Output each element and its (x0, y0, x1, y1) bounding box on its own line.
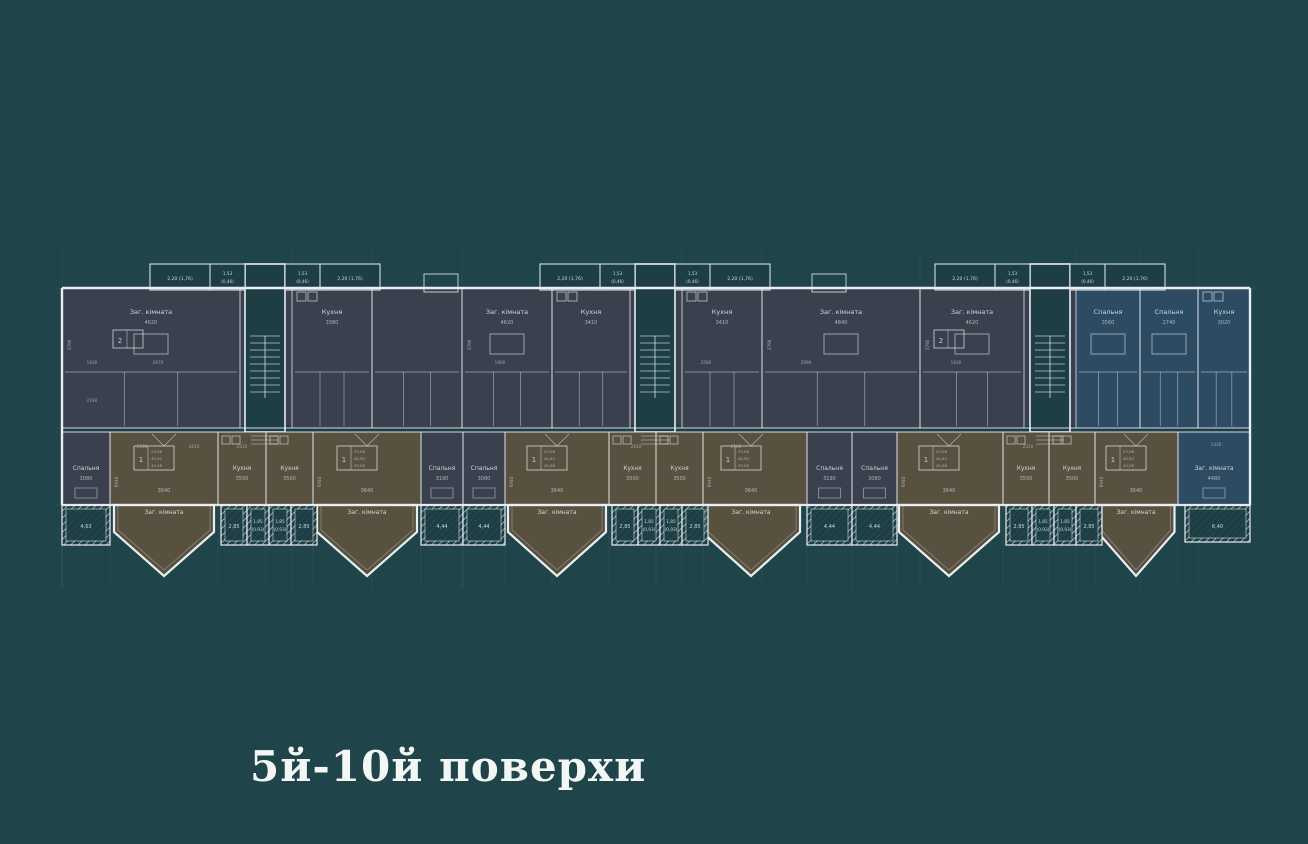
room-label: Кухня (1214, 308, 1235, 316)
room-vdim: 3790 (67, 339, 72, 350)
room-dim: 3380 (326, 320, 339, 326)
balcony-floor (642, 509, 656, 541)
balcony-area: 4,44 (869, 524, 880, 530)
room-dim: 4620 (966, 320, 979, 326)
room-vdim: 3790 (925, 339, 930, 350)
room-dim: 3500 (1066, 476, 1079, 482)
room-dim: 3080 (80, 476, 93, 482)
balcony-area: 6,40 (1212, 524, 1223, 530)
room-dim: 3500 (1020, 476, 1033, 482)
balcony-area: 2,20 (1,76) (1122, 276, 1148, 282)
apartment-number: 1 (924, 456, 928, 464)
balcony-area: 2,20 (1,76) (952, 276, 978, 282)
balcony-area: 4,44 (478, 524, 489, 530)
balcony-area: 1,53 (298, 271, 308, 276)
room-label: Кухня (1017, 466, 1035, 472)
balcony-area: 2,85 (228, 524, 239, 530)
room-vdim: 6940 (901, 476, 906, 487)
balcony-floor (251, 509, 265, 541)
extra-dim: 2670 (153, 360, 164, 365)
top-balcony (210, 264, 245, 290)
room-dim: 2740 (1163, 320, 1176, 326)
room-vdim: 3790 (467, 339, 472, 350)
room-lower (110, 432, 218, 505)
extra-dim: 2190 (87, 398, 98, 403)
balcony-area: 1,53 (613, 271, 623, 276)
balcony-area: 2,85 (689, 524, 700, 530)
room-dim: 4840 (835, 320, 848, 326)
extra-dim: 2580 (701, 360, 712, 365)
room-vdim: 6940 (1099, 476, 1104, 487)
room-label: Спальня (73, 465, 100, 472)
apartment-area-value: 23,06 (354, 449, 365, 454)
apartment-area-value: 23,06 (738, 449, 749, 454)
room-label: Кухня (581, 308, 602, 316)
top-balcony (995, 264, 1030, 290)
extra-dim: 2990 (801, 360, 812, 365)
room-label: Спальня (429, 465, 456, 472)
balcony-area: 1,85 (1060, 519, 1070, 525)
room-lower (897, 432, 1003, 505)
balcony-area: (0,46) (611, 279, 624, 284)
extra-dim: 1430 (1211, 442, 1222, 447)
room-label: Спальня (1155, 308, 1184, 316)
room-label: Спальня (471, 465, 498, 472)
extra-dim: 1900 (495, 360, 506, 365)
apartment-area-value: 40,50 (738, 456, 749, 461)
room-lower (313, 432, 421, 505)
balcony-area: (0,46) (296, 279, 309, 284)
balcony-area: 1,85 (275, 519, 285, 525)
apartment-area-value: 43,28 (1123, 463, 1134, 468)
room-label: Кухня (1063, 466, 1081, 472)
extra-dim: 2100 (137, 444, 148, 449)
room-dim: 3640 (745, 488, 758, 494)
apartment-area-value: 43,28 (738, 463, 749, 468)
floor-plan-image: Заг. кімната462037902Кухня3380Заг. кімна… (0, 0, 1308, 844)
balcony-area: (0,46) (1081, 279, 1094, 284)
extra-dim: 1930 (951, 360, 962, 365)
room-dim: 3080 (868, 476, 881, 482)
balcony-area: 2,85 (1013, 524, 1024, 530)
top-balcony (600, 264, 635, 290)
apartment-number: 2 (118, 337, 122, 345)
room-label: Заг. кімната (537, 509, 576, 516)
extra-dim: 2100 (731, 444, 742, 449)
balcony-area: 1,53 (1008, 271, 1018, 276)
room-lower (1095, 432, 1178, 505)
room-label: Кухня (322, 308, 343, 316)
apartment-number: 1 (1111, 456, 1115, 464)
room-label: Кухня (233, 466, 251, 472)
room-label: Кухня (280, 466, 298, 472)
balcony-area: (0,93) (274, 527, 287, 533)
apartment-number: 2 (939, 337, 943, 345)
balcony-area: 2,85 (298, 524, 309, 530)
apartment-area-value: 23,06 (1123, 449, 1134, 454)
apartment-area-value: 23,06 (151, 449, 162, 454)
apartment-area-value: 40,50 (1123, 456, 1134, 461)
balcony-floor (1036, 509, 1050, 541)
floor-title: 5й-10й поверхи (250, 742, 646, 791)
room-dim: 3080 (478, 476, 491, 482)
balcony-area: (0,93) (643, 527, 656, 533)
room-upper (372, 288, 462, 428)
apartment-area-value: 40,50 (151, 456, 162, 461)
apartment-area-value: 23,06 (936, 449, 947, 454)
balcony-area: 2,20 (1,76) (557, 276, 583, 282)
room-dim: 3020 (1218, 320, 1231, 326)
balcony-area: 2,85 (619, 524, 630, 530)
room-dim: 3640 (1130, 488, 1143, 494)
balcony-floor (664, 509, 678, 541)
balcony-area: (0,46) (1006, 279, 1019, 284)
room-lower (703, 432, 807, 505)
balcony-floor (273, 509, 287, 541)
balcony-area: (0,93) (665, 527, 678, 533)
top-balcony (285, 264, 320, 290)
apartment-area-value: 40,50 (354, 456, 365, 461)
extra-dim: 2310 (1023, 444, 1034, 449)
room-label: Заг. кімната (144, 509, 183, 516)
balcony-area: 2,20 (1,76) (727, 276, 753, 282)
room-label: Заг. кімната (929, 509, 968, 516)
room-dim: 3410 (716, 320, 729, 326)
balcony-area: (0,93) (1037, 527, 1050, 533)
room-label: Спальня (1094, 308, 1123, 316)
room-dim: 3190 (436, 476, 449, 482)
balcony-area: 1,85 (666, 519, 676, 525)
apartment-area-value: 40,50 (544, 456, 555, 461)
room-vdim: 6940 (114, 476, 119, 487)
balcony-floor (1058, 509, 1072, 541)
balcony-area: 1,85 (1038, 519, 1048, 525)
balcony-area: (0,93) (1059, 527, 1072, 533)
apartment-area-value: 43,28 (354, 463, 365, 468)
apartment-area-value: 40,50 (936, 456, 947, 461)
room-dim: 3640 (551, 488, 564, 494)
balcony-area: 2,20 (1,76) (337, 276, 363, 282)
room-dim: 3640 (943, 488, 956, 494)
room-dim: 3500 (283, 476, 296, 482)
room-dim: 3640 (361, 488, 374, 494)
extra-dim: 2610 (189, 444, 200, 449)
balcony-area: 1,53 (223, 271, 233, 276)
balcony-area: (0,46) (686, 279, 699, 284)
room-lower (505, 432, 609, 505)
balcony-area: 4,44 (436, 524, 447, 530)
room-vdim: 6940 (707, 476, 712, 487)
room-label: Заг. кімната (486, 308, 528, 316)
room-dim: 3500 (673, 476, 686, 482)
balcony-area: 4,44 (824, 524, 835, 530)
room-dim: 3500 (626, 476, 639, 482)
apartment-number: 1 (139, 456, 143, 464)
room-vdim: 3790 (767, 339, 772, 350)
floor-plan-svg: Заг. кімната462037902Кухня3380Заг. кімна… (0, 0, 1308, 844)
room-label: Заг. кімната (130, 308, 172, 316)
balcony-area: 1,85 (644, 519, 654, 525)
room-label: Кухня (623, 466, 641, 472)
balcony-area: 1,53 (1083, 271, 1093, 276)
apartment-area-value: 43,28 (151, 463, 162, 468)
room-dim: 3500 (236, 476, 249, 482)
extra-dim: 2610 (631, 444, 642, 449)
room-dim: 3410 (585, 320, 598, 326)
room-label: Заг. кімната (1194, 465, 1233, 472)
room-label: Кухня (670, 466, 688, 472)
apartment-number: 1 (342, 456, 346, 464)
room-label: Заг. кімната (951, 308, 993, 316)
room-vdim: 6940 (317, 476, 322, 487)
apartment-number: 1 (726, 456, 730, 464)
apartment-number: 1 (532, 456, 536, 464)
room-label: Спальня (861, 465, 888, 472)
apartment-area-value: 23,06 (544, 449, 555, 454)
room-dim: 4620 (501, 320, 514, 326)
balcony-area: (0,46) (221, 279, 234, 284)
apartment-area-value: 43,28 (936, 463, 947, 468)
room-label: Заг. кімната (347, 509, 386, 516)
room-dim: 3640 (158, 488, 171, 494)
balcony-area: (0,93) (252, 527, 265, 533)
room-dim: 4620 (145, 320, 158, 326)
balcony-area: 1,85 (253, 519, 263, 525)
room-label: Заг. кімната (820, 308, 862, 316)
balcony-area: 2,20 (1,76) (167, 276, 193, 282)
extra-dim: 1930 (87, 360, 98, 365)
room-dim: 4480 (1208, 476, 1221, 482)
room-label: Спальня (816, 465, 843, 472)
top-balcony (675, 264, 710, 290)
balcony-area: 4,63 (80, 524, 91, 530)
extra-dim: 2310 (237, 444, 248, 449)
room-label: Кухня (712, 308, 733, 316)
apartment-area-value: 43,28 (544, 463, 555, 468)
room-vdim: 6940 (509, 476, 514, 487)
balcony-area: 2,85 (1083, 524, 1094, 530)
room-label: Заг. кімната (1116, 509, 1155, 516)
room-label: Заг. кімната (731, 509, 770, 516)
top-balcony (1070, 264, 1105, 290)
room-dim: 3560 (1102, 320, 1115, 326)
balcony-area: 1,53 (688, 271, 698, 276)
room-dim: 3190 (823, 476, 836, 482)
